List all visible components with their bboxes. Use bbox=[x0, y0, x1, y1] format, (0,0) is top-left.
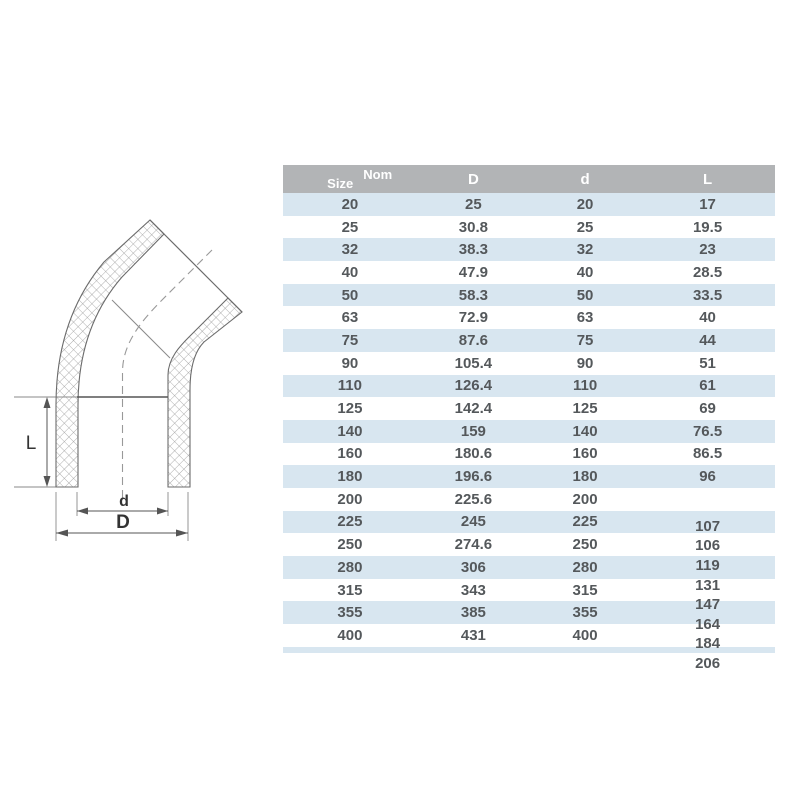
table-cell: 200 bbox=[283, 491, 417, 508]
table-body: 202520172530.82519.53238.332234047.94028… bbox=[283, 193, 775, 647]
header-cell-size-nom: Size Nom bbox=[283, 165, 417, 193]
table-cell: 33.5 bbox=[640, 287, 775, 304]
table-row: 6372.96340 bbox=[283, 306, 775, 329]
table-row: 200225.6200 bbox=[283, 488, 775, 511]
table-cell: 63 bbox=[283, 309, 417, 326]
table-cell: 225 bbox=[530, 513, 640, 530]
header-nom-label: Nom bbox=[363, 167, 392, 182]
table-row: 125142.412569 bbox=[283, 397, 775, 420]
table-cell: 76.5 bbox=[640, 423, 775, 440]
arrow-left-icon bbox=[77, 508, 88, 515]
table-cell: 50 bbox=[283, 287, 417, 304]
table-cell: 280 bbox=[530, 559, 640, 576]
table-cell: 126.4 bbox=[417, 377, 530, 394]
label-d-inner: d bbox=[119, 493, 129, 510]
table-cell: 315 bbox=[283, 582, 417, 599]
table-row: 4047.94028.5 bbox=[283, 261, 775, 284]
table-cell: 75 bbox=[283, 332, 417, 349]
table-row: 14015914076.5 bbox=[283, 420, 775, 443]
arrow-down-icon bbox=[44, 476, 51, 487]
table-row: 400431400 bbox=[283, 624, 775, 647]
table-row: 5058.35033.5 bbox=[283, 284, 775, 307]
table-cell: 20 bbox=[283, 196, 417, 213]
elbow-right-wall-hatched bbox=[168, 298, 242, 487]
table-cell: 105.4 bbox=[417, 355, 530, 372]
table-cell: 30.8 bbox=[417, 219, 530, 236]
table-cell: 90 bbox=[530, 355, 640, 372]
table-cell: 40 bbox=[640, 309, 775, 326]
header-size-label: Size bbox=[327, 176, 353, 191]
table-row: 2530.82519.5 bbox=[283, 216, 775, 239]
arrow-right-icon bbox=[157, 508, 168, 515]
upper-shoulder-line bbox=[112, 300, 170, 358]
table-cell: 25 bbox=[417, 196, 530, 213]
table-row: 110126.411061 bbox=[283, 375, 775, 398]
stripe-tail bbox=[283, 647, 775, 653]
dimension-l: L bbox=[26, 397, 51, 487]
table-cell: 160 bbox=[283, 445, 417, 462]
table-row: 355385355 bbox=[283, 601, 775, 624]
header-cell-l: L bbox=[640, 171, 775, 188]
table-cell: 142.4 bbox=[417, 400, 530, 417]
label-l: L bbox=[26, 433, 37, 454]
table-cell: 61 bbox=[640, 377, 775, 394]
table-header: Size Nom D d L bbox=[283, 165, 775, 193]
header-cell-d-inner: d bbox=[530, 171, 640, 188]
table-row: 3238.33223 bbox=[283, 238, 775, 261]
table-cell: 250 bbox=[530, 536, 640, 553]
table-cell: 90 bbox=[283, 355, 417, 372]
table-cell: 44 bbox=[640, 332, 775, 349]
table-cell: 25 bbox=[283, 219, 417, 236]
table-row: 315343315 bbox=[283, 579, 775, 602]
table-cell: 306 bbox=[417, 559, 530, 576]
table-cell: 180 bbox=[530, 468, 640, 485]
table-cell: 225.6 bbox=[417, 491, 530, 508]
table-cell: 58.3 bbox=[417, 287, 530, 304]
table-row: 225245225 bbox=[283, 511, 775, 534]
table-cell: 385 bbox=[417, 604, 530, 621]
table-cell: 50 bbox=[530, 287, 640, 304]
table-cell: 180.6 bbox=[417, 445, 530, 462]
arrow-left-icon bbox=[56, 530, 68, 537]
arrow-up-icon bbox=[44, 397, 51, 408]
table-cell: 400 bbox=[530, 627, 640, 644]
table-cell: 28.5 bbox=[640, 264, 775, 281]
table-cell: 280 bbox=[283, 559, 417, 576]
table-cell: 110 bbox=[283, 377, 417, 394]
table-cell: 40 bbox=[530, 264, 640, 281]
table-cell: 69 bbox=[640, 400, 775, 417]
table-cell: 17 bbox=[640, 196, 775, 213]
table-cell: 96 bbox=[640, 468, 775, 485]
table-cell: 75 bbox=[530, 332, 640, 349]
header-cell-d-outer: D bbox=[417, 171, 530, 188]
table-cell: 343 bbox=[417, 582, 530, 599]
table-cell: 125 bbox=[283, 400, 417, 417]
table-cell: 23 bbox=[640, 241, 775, 258]
table-cell: 355 bbox=[530, 604, 640, 621]
table-cell: 32 bbox=[530, 241, 640, 258]
table-cell: 159 bbox=[417, 423, 530, 440]
table-cell: 32 bbox=[283, 241, 417, 258]
table-cell: 180 bbox=[283, 468, 417, 485]
table-cell: 51 bbox=[640, 355, 775, 372]
table-cell: 20 bbox=[530, 196, 640, 213]
table-cell: 25 bbox=[530, 219, 640, 236]
table-cell: 140 bbox=[283, 423, 417, 440]
table-cell: 250 bbox=[283, 536, 417, 553]
table-cell: 160 bbox=[530, 445, 640, 462]
table-row: 280306280 bbox=[283, 556, 775, 579]
table-row: 7587.67544 bbox=[283, 329, 775, 352]
spec-table: Size Nom D d L 202520172530.82519.53238.… bbox=[283, 165, 775, 653]
table-cell: 38.3 bbox=[417, 241, 530, 258]
table-cell: 245 bbox=[417, 513, 530, 530]
table-cell: 87.6 bbox=[417, 332, 530, 349]
table-row: 250274.6250 bbox=[283, 533, 775, 556]
table-cell: 47.9 bbox=[417, 264, 530, 281]
table-cell: 225 bbox=[283, 513, 417, 530]
table-cell: 40 bbox=[283, 264, 417, 281]
table-cell: 355 bbox=[283, 604, 417, 621]
table-cell: 274.6 bbox=[417, 536, 530, 553]
table-row: 90105.49051 bbox=[283, 352, 775, 375]
arrow-right-icon bbox=[176, 530, 188, 537]
table-cell: 315 bbox=[530, 582, 640, 599]
centerline-dashed bbox=[123, 250, 213, 502]
table-row: 20252017 bbox=[283, 193, 775, 216]
table-cell: 86.5 bbox=[640, 445, 775, 462]
table-cell: 196.6 bbox=[417, 468, 530, 485]
table-row: 160180.616086.5 bbox=[283, 443, 775, 466]
elbow-left-wall-hatched bbox=[56, 220, 164, 487]
table-cell: 140 bbox=[530, 423, 640, 440]
table-cell: 200 bbox=[530, 491, 640, 508]
table-cell: 431 bbox=[417, 627, 530, 644]
table-cell: 19.5 bbox=[640, 219, 775, 236]
table-cell: 400 bbox=[283, 627, 417, 644]
table-cell: 110 bbox=[530, 377, 640, 394]
table-cell: 72.9 bbox=[417, 309, 530, 326]
label-d-outer: D bbox=[116, 512, 130, 533]
table-cell: 125 bbox=[530, 400, 640, 417]
table-row: 180196.618096 bbox=[283, 465, 775, 488]
table-cell: 63 bbox=[530, 309, 640, 326]
